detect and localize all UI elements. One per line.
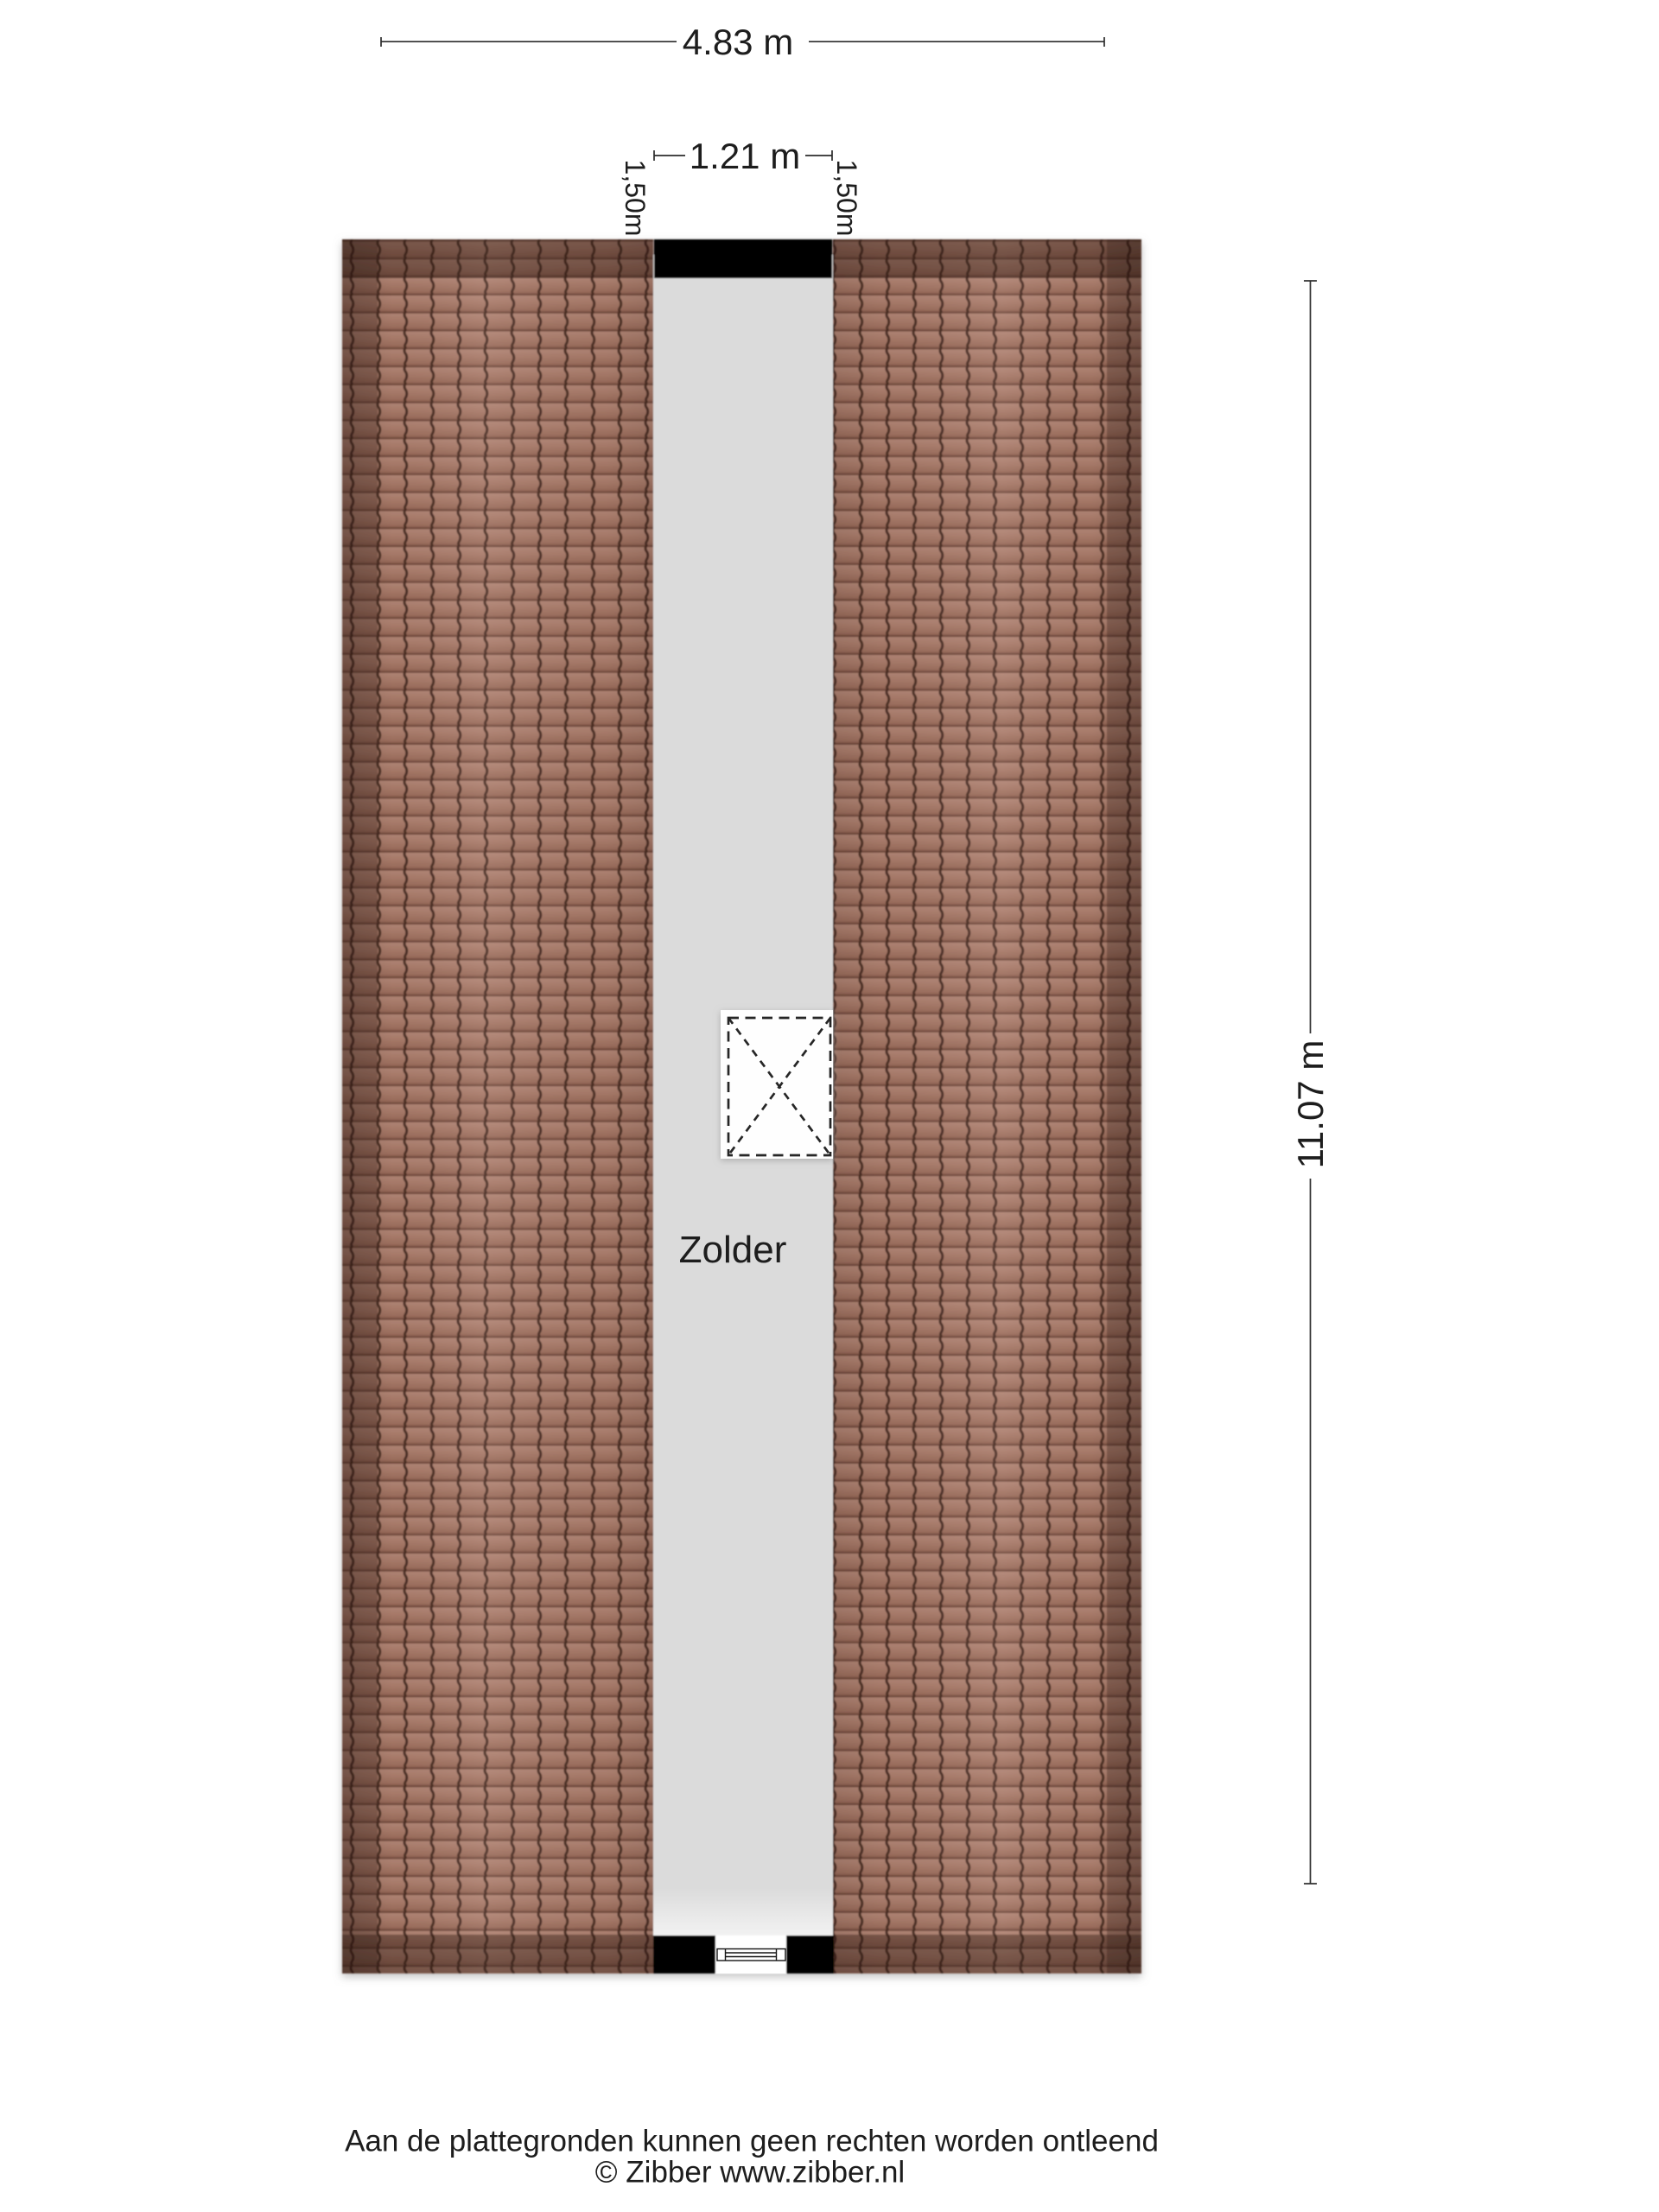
svg-text:11.07 m: 11.07 m <box>1290 1040 1331 1169</box>
svg-text:1,50m: 1,50m <box>831 160 862 237</box>
svg-text:4.83 m: 4.83 m <box>683 22 793 62</box>
svg-text:1,50m: 1,50m <box>620 160 651 237</box>
svg-text:© Zibber www.zibber.nl: © Zibber www.zibber.nl <box>595 2156 905 2190</box>
svg-text:Zolder: Zolder <box>679 1229 787 1271</box>
svg-text:1.21 m: 1.21 m <box>690 136 800 176</box>
svg-text:Aan de plattegronden kunnen ge: Aan de plattegronden kunnen geen rechten… <box>345 2125 1159 2158</box>
